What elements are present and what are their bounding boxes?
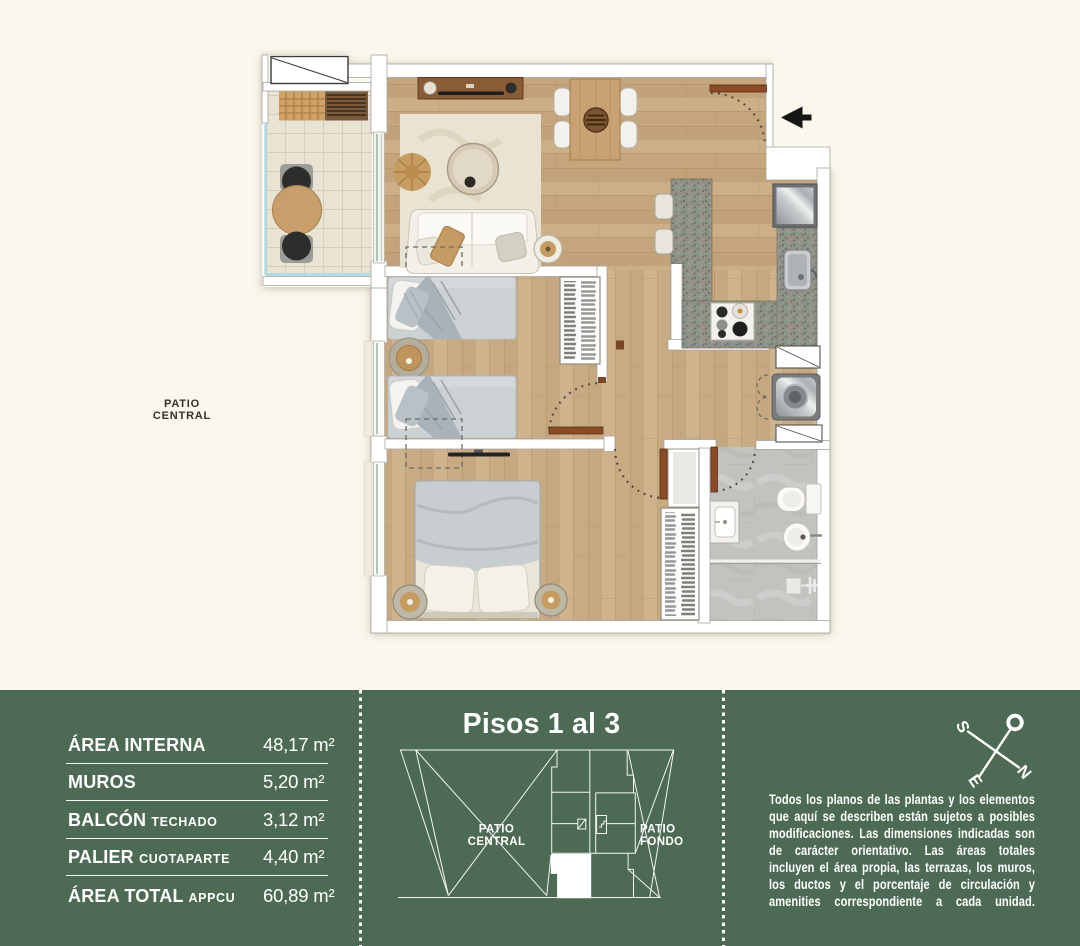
svg-text:E: E (964, 771, 985, 790)
svg-text:CENTRAL: CENTRAL (468, 836, 526, 848)
svg-text:PATIO: PATIO (479, 824, 514, 836)
svg-text:PATIO: PATIO (640, 824, 675, 836)
svg-text:FONDO: FONDO (640, 836, 684, 848)
